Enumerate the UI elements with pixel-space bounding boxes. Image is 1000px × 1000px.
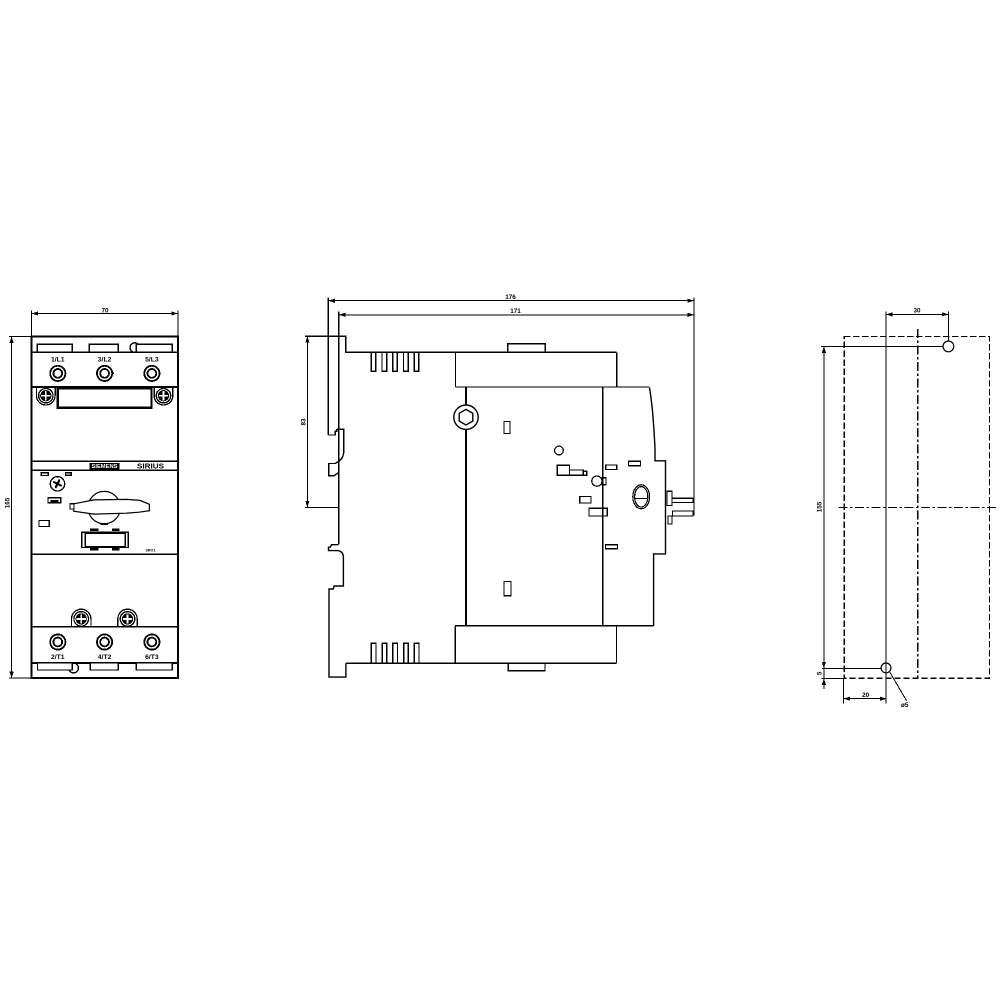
svg-text:SIEMENS: SIEMENS [92, 464, 119, 470]
svg-text:SIRIUS: SIRIUS [137, 462, 164, 471]
svg-text:30: 30 [913, 308, 921, 315]
svg-text:171: 171 [510, 308, 521, 315]
svg-text:4/T2: 4/T2 [98, 654, 112, 661]
svg-text:176: 176 [505, 294, 516, 301]
svg-text:20: 20 [862, 692, 870, 699]
svg-text:3RV1: 3RV1 [146, 547, 157, 552]
svg-text:3/L2: 3/L2 [98, 357, 112, 364]
svg-text:165: 165 [5, 497, 12, 508]
svg-text:70: 70 [101, 308, 109, 315]
svg-text:1/L1: 1/L1 [51, 357, 65, 364]
svg-text:6/T3: 6/T3 [145, 654, 159, 661]
svg-text:5: 5 [817, 671, 824, 675]
svg-text:155: 155 [817, 501, 824, 512]
svg-text:2/T1: 2/T1 [51, 654, 65, 661]
svg-text:83: 83 [301, 418, 308, 426]
svg-text:ø5: ø5 [901, 702, 909, 709]
svg-text:5/L3: 5/L3 [145, 357, 159, 364]
